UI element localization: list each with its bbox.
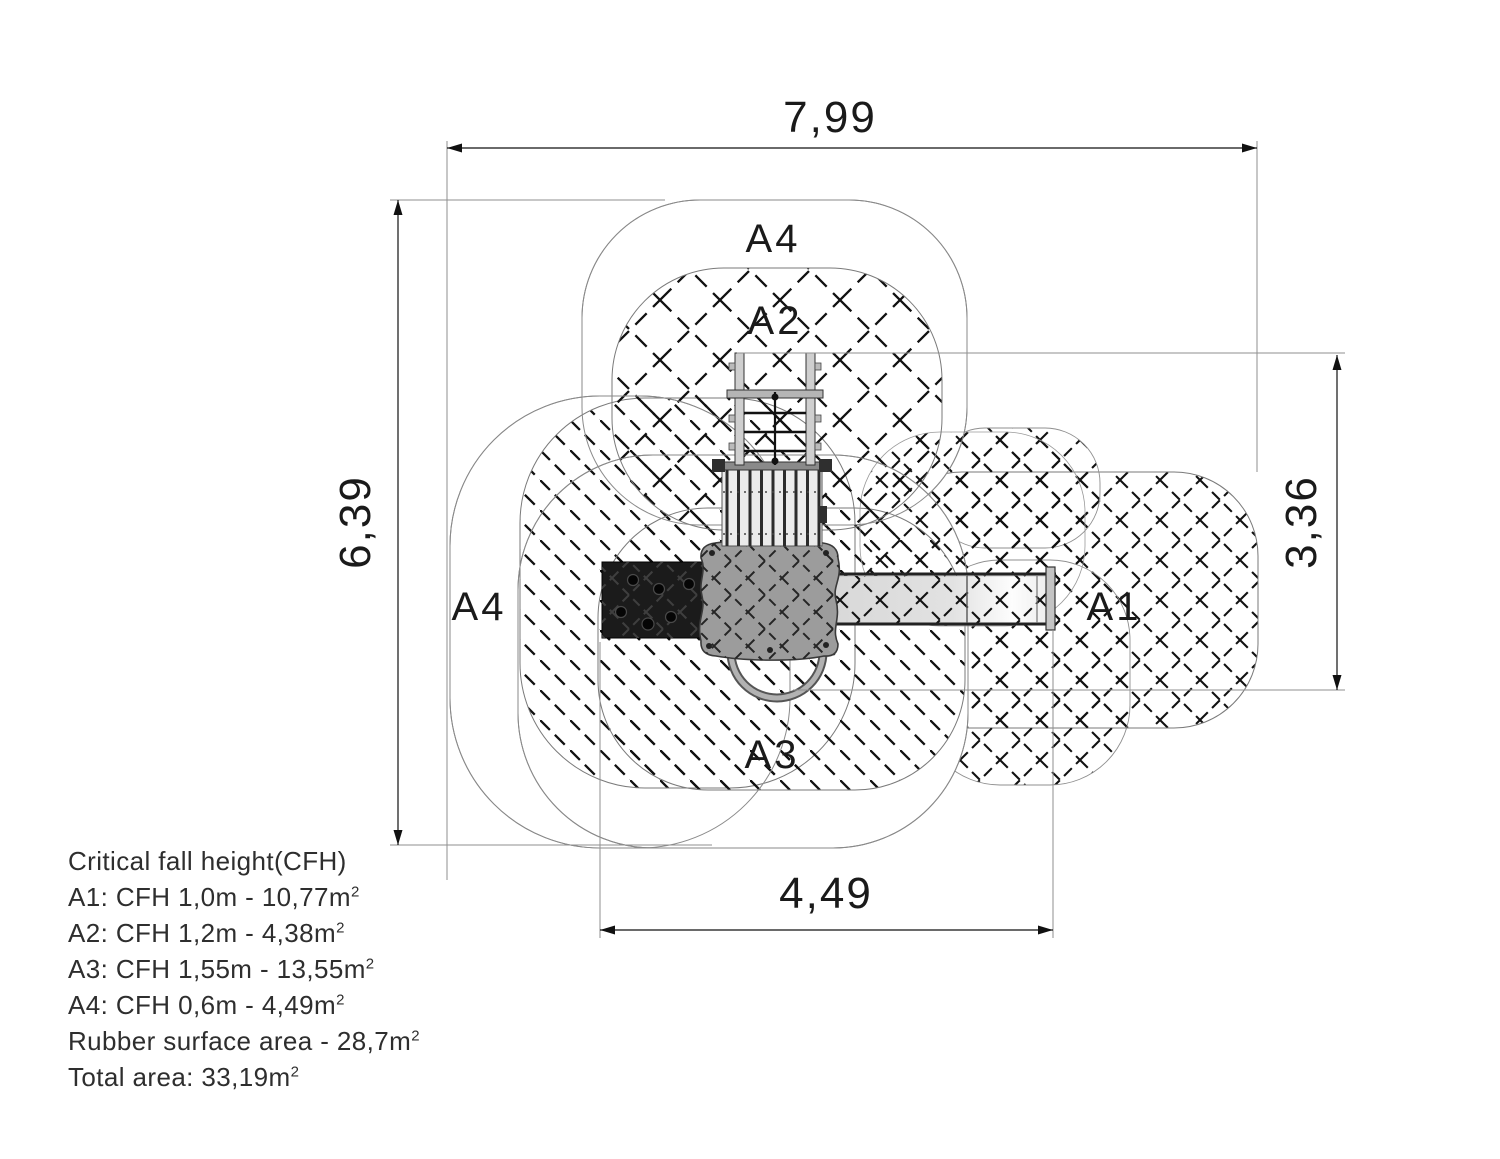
slide-end-cap xyxy=(1046,567,1055,630)
cfh-legend: Critical fall height(CFH) A1: CFH 1,0m -… xyxy=(68,843,528,1095)
ladder-rod-knob-top xyxy=(772,394,779,401)
legend-item-rubber-area: Rubber surface area - 28,7m2 xyxy=(68,1023,528,1059)
dim-overall-height: 6,39 xyxy=(331,475,380,569)
palisade-bracket-right xyxy=(819,459,832,472)
zone-label-a4-left: A4 xyxy=(452,585,507,629)
ladder-post-right xyxy=(806,353,815,465)
ladder-post-left xyxy=(735,353,744,465)
legend-item-a1: A1: CFH 1,0m - 10,77m2 xyxy=(68,879,528,915)
dim-equipment-height: 3,36 xyxy=(1277,475,1326,569)
zone-label-a3: A3 xyxy=(745,733,800,777)
superscript: 2 xyxy=(336,919,345,936)
platform-texture xyxy=(700,540,840,660)
palisade-latch xyxy=(818,506,827,523)
zone-label-a4-top: A4 xyxy=(746,217,801,261)
safety-zones xyxy=(450,200,1258,848)
legend-item-a3: A3: CFH 1,55m - 13,55m2 xyxy=(68,951,528,987)
ladder-rod-knob-bottom xyxy=(772,458,779,465)
palisade-barrier xyxy=(712,459,832,546)
slide-texture xyxy=(832,576,1052,623)
superscript: 2 xyxy=(411,1027,420,1044)
zone-label-a2: A2 xyxy=(748,299,803,343)
legend-item-a2: A2: CFH 1,2m - 4,38m2 xyxy=(68,915,528,951)
legend-title: Critical fall height(CFH) xyxy=(68,843,528,879)
dim-equipment-width: 4,49 xyxy=(779,869,873,918)
dim-overall-width: 7,99 xyxy=(783,93,877,142)
superscript: 2 xyxy=(336,991,345,1008)
legend-item-total-area: Total area: 33,19m2 xyxy=(68,1059,528,1095)
superscript: 2 xyxy=(291,1063,300,1080)
superscript: 2 xyxy=(366,955,375,972)
superscript: 2 xyxy=(351,883,360,900)
legend-item-a4: A4: CFH 0,6m - 4,49m2 xyxy=(68,987,528,1023)
platform xyxy=(700,540,840,660)
slide xyxy=(830,567,1056,630)
zone-label-a1: A1 xyxy=(1087,585,1142,629)
drawing-canvas: 7,99 6,39 3,36 4,49 A4 A2 A4 A1 A3 Criti… xyxy=(0,0,1500,1159)
palisade-bracket-left xyxy=(712,459,725,472)
climbing-wall xyxy=(602,562,706,638)
